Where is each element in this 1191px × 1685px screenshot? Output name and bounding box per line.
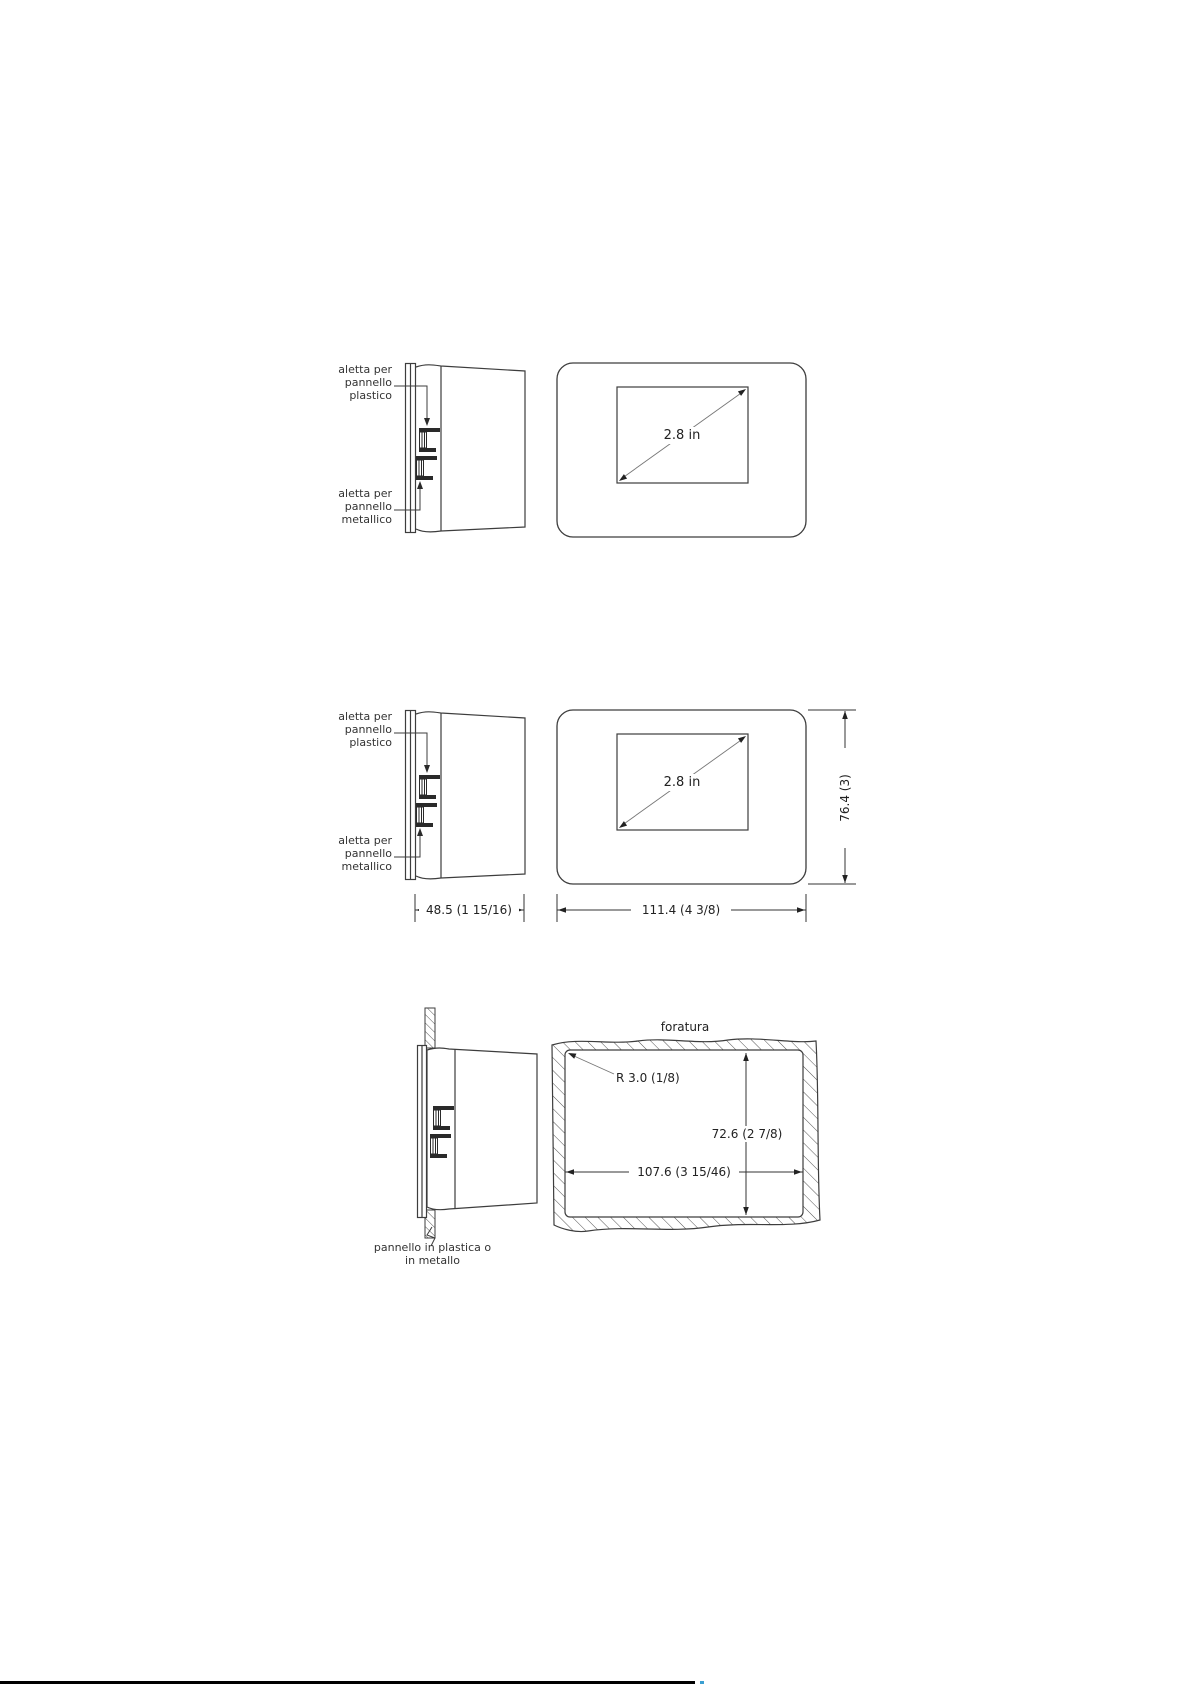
arrow-right-icon — [794, 1169, 802, 1175]
arrow-down-icon — [424, 765, 430, 773]
footer-accent-dot — [700, 1681, 704, 1684]
clip-metal-label: aletta per pannello metallico — [310, 834, 392, 873]
width-dimension: 111.4 (4 3/8) — [631, 902, 731, 918]
arrow-left-icon — [566, 1169, 574, 1175]
cutout-width-dimension: 107.6 (3 15/46) — [629, 1164, 739, 1180]
manual-page: aletta per pannello plastico aletta per … — [0, 0, 1191, 1685]
arrow-right-icon — [797, 907, 805, 913]
cutout-height-dimension: 72.6 (2 7/8) — [697, 1126, 797, 1142]
arrow-down-icon — [842, 875, 848, 883]
panel-strip-top — [425, 1008, 435, 1048]
arrow-up-icon — [743, 1053, 749, 1061]
display-diagonal-size: 2.8 in — [645, 774, 719, 791]
arrow-up-icon — [417, 481, 423, 489]
arrow-left-icon — [558, 907, 566, 913]
arrow-corner-icon — [568, 1053, 576, 1059]
clip-plastic-label: aletta per pannello plastico — [310, 363, 392, 402]
height-dimension: 76.4 (3) — [837, 748, 853, 848]
panel-material-label: pannello in plastica o in metallo — [330, 1241, 535, 1267]
side-view-drawing-mounted — [385, 1000, 550, 1262]
clip-plastic-label: aletta per pannello plastico — [310, 710, 392, 749]
depth-dimension: 48.5 (1 15/16) — [419, 902, 519, 918]
front-view-drawing-top — [555, 360, 810, 540]
arrow-up-icon — [417, 828, 423, 836]
arrow-up-icon — [842, 711, 848, 719]
front-view-drawing-dim — [555, 707, 810, 887]
display-diagonal-size: 2.8 in — [645, 427, 719, 444]
corner-radius-dimension: R 3.0 (1/8) — [616, 1070, 680, 1086]
cutout-title: foratura — [633, 1020, 737, 1034]
arrow-down-icon — [424, 418, 430, 426]
clip-metal-label: aletta per pannello metallico — [310, 487, 392, 526]
arrow-down-icon — [743, 1207, 749, 1215]
footer-rule — [0, 1681, 695, 1684]
